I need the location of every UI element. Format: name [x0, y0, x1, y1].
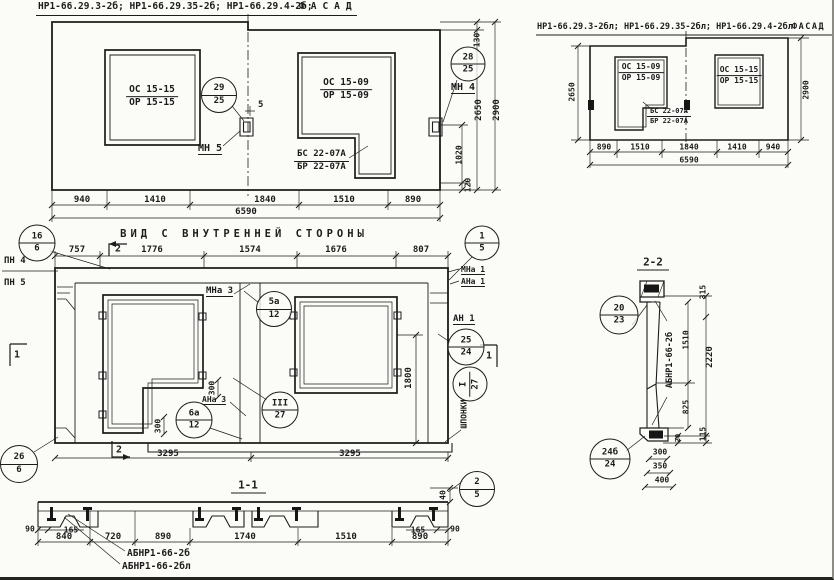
dim-label: 2900 — [801, 80, 810, 99]
facade-right-title-word: ФАСАД — [792, 23, 825, 33]
dim-label: 400 — [655, 475, 669, 484]
callout-bottom: 27 — [263, 411, 298, 422]
callout-top: 6а — [177, 408, 212, 420]
callout-bottom: 5 — [466, 244, 499, 255]
window-mark-left: ОС 15-15 ОР 15-15 — [126, 84, 178, 110]
callout-1-5: 1 5 — [465, 226, 500, 261]
mark-an1: АН 1 — [453, 314, 475, 325]
callout-28-25: 28 25 — [451, 47, 486, 82]
window-mark-bottom: ОР 15-15 — [717, 77, 762, 87]
section-mark-1-right: 1 — [486, 350, 492, 362]
callout-bottom: 23 — [601, 316, 638, 327]
dim-label: 2220 — [705, 346, 715, 368]
dim-label: 1740 — [234, 532, 256, 542]
dim-label: 40 — [438, 490, 447, 500]
callout-top: 28 — [452, 52, 485, 64]
dim-label: 1776 — [141, 245, 163, 255]
dim-label: 940 — [74, 195, 90, 205]
dim-label: 300 — [153, 419, 162, 433]
window-mark-bottom: ОР 15-09 — [619, 74, 664, 84]
callout-16-6: 16 6 — [19, 225, 56, 262]
dim-label: 20 — [674, 434, 682, 442]
dim-label: 1020 — [454, 145, 463, 164]
mark-mna1: МНа 1 — [461, 265, 485, 275]
dim-label: 890 — [597, 142, 611, 151]
callout-top: III — [263, 398, 298, 410]
window-mark-top: БС 22-07А — [647, 107, 691, 117]
section-mark-2-bottom: 2 — [116, 444, 122, 456]
callout-24b-24: 24б 24 — [590, 439, 631, 480]
dim-label: 90 — [450, 524, 460, 533]
callout-bottom: 12 — [257, 310, 291, 321]
dim-label: 350 — [653, 461, 667, 470]
window-mark-top: ОС 15-09 — [619, 62, 664, 73]
dim-label: 2900 — [492, 99, 502, 121]
dim-label: 1510 — [333, 195, 355, 205]
dim-label: 1410 — [144, 195, 166, 205]
panel-mark-label: АБНР1-66-2бл — [122, 562, 191, 573]
dim-label: 890 — [412, 532, 428, 542]
window-mark-top: ОС 15-09 — [320, 77, 372, 90]
dim-label: 1574 — [239, 245, 261, 255]
callout-bottom: 25 — [452, 65, 485, 76]
dim-label: 2650 — [567, 82, 576, 101]
window-mark-left: ОС 15-09 ОР 15-09 — [619, 62, 664, 84]
callout-top: 5а — [257, 297, 291, 309]
callout-bottom: 6 — [20, 244, 55, 255]
dim-label: 300 — [207, 381, 216, 395]
window-mark-top: БС 22-07А — [294, 149, 349, 162]
mark-mna3: МНа 3 — [206, 286, 233, 297]
section-mark-2-top: 2 — [115, 243, 121, 255]
callout-25-24: 25 24 — [448, 329, 485, 366]
mark-mn4: МН 4 — [451, 82, 475, 94]
callout-26-6: 26 6 — [0, 445, 38, 483]
window-mark-bottom: ОР 15-15 — [126, 98, 178, 110]
window-mark-top: ОС 15-15 — [717, 65, 762, 76]
callout-top: 25 — [449, 335, 484, 347]
facade-left-title-word: ФАСАД — [299, 2, 358, 13]
dim-label: 120 — [463, 178, 472, 192]
dim-label: 3295 — [339, 449, 361, 459]
callout-5a-12: 5а 12 — [256, 291, 292, 327]
window-mark-bottom: ОР 15-09 — [320, 91, 372, 103]
dim-label: 90 — [25, 524, 35, 533]
callout-top: 2 — [460, 477, 494, 489]
window-mark-left-extra: БС 22-07А БР 22-07А — [647, 107, 691, 126]
callout-2-5: 2 5 — [459, 471, 495, 507]
dim-label: 1410 — [727, 142, 746, 151]
callout-top: 26 — [1, 452, 37, 464]
dim-label: 300 — [653, 447, 667, 456]
callout-top: 29 — [202, 83, 236, 95]
dim-label: 757 — [69, 245, 85, 255]
drawing-sheet: НР1-66.29.3-2б; НР1-66.29.35-2б; НР1-66.… — [0, 0, 834, 580]
window-mark-bottom: БР 22-07А — [647, 117, 691, 126]
dim-label: 115 — [698, 427, 707, 441]
dim-label: 807 — [413, 245, 429, 255]
panel-mark-label-vertical: АБНР1-66-2б — [666, 332, 676, 388]
dim-label: 1800 — [404, 367, 414, 389]
callout-20-23: 20 23 — [600, 296, 639, 335]
section-1-1-outline — [35, 481, 463, 564]
callout-3-27: III 27 — [262, 392, 299, 429]
mark-keys: ШПОНКИ — [459, 400, 468, 429]
mark-ana3: АНа 3 — [202, 395, 226, 405]
callout-bottom: 6 — [1, 465, 37, 476]
dim-label: 130 — [472, 33, 481, 47]
window-mark-right-extra: БС 22-07А БР 22-07А — [294, 149, 349, 173]
facade-left-title: НР1-66.29.3-2б; НР1-66.29.35-2б; НР1-66.… — [38, 2, 313, 13]
callout-top: 20 — [601, 303, 638, 315]
dim-label: 825 — [681, 400, 690, 414]
callout-bottom: 12 — [177, 421, 212, 432]
dim-label: 1676 — [325, 245, 347, 255]
dim-label: 1840 — [679, 142, 698, 151]
inner-view-title: ВИД С ВНУТРЕННЕЙ СТОРОНЫ — [120, 228, 368, 240]
callout-top: 16 — [20, 231, 55, 243]
callout-29-25: 29 25 — [201, 77, 237, 113]
callout-bottom: 27 — [471, 372, 482, 397]
dim-label: 1840 — [254, 195, 276, 205]
dim-label: 940 — [766, 142, 780, 151]
callout-top: 1 — [466, 231, 499, 243]
facade-left-outline — [36, 14, 501, 222]
dim-label: 1510 — [681, 330, 690, 349]
dim-label: 840 — [56, 532, 72, 542]
mark-ana1: АНа 1 — [461, 277, 485, 287]
dim-label: 1510 — [335, 532, 357, 542]
callout-bottom: 24 — [591, 460, 630, 471]
dim-label-total: 6590 — [679, 155, 698, 164]
dim-label-total: 6590 — [235, 207, 257, 217]
window-mark-bottom: БР 22-07А — [294, 162, 349, 174]
window-mark-top: ОС 15-15 — [126, 84, 178, 97]
panel-mark-label: АБНР1-66-2б — [127, 549, 190, 560]
drawing-linework — [0, 0, 834, 580]
window-mark-right: ОС 15-15 ОР 15-15 — [717, 65, 762, 87]
callout-bottom: 24 — [449, 348, 484, 359]
inner-view-outline — [2, 241, 497, 462]
dim-label: 720 — [105, 532, 121, 542]
facade-right-title: НР1-66.29.3-2бл; НР1-66.29.35-2бл; НР1-6… — [537, 23, 793, 33]
window-mark-right: ОС 15-09 ОР 15-09 — [320, 77, 372, 103]
callout-6a-12: 6а 12 — [176, 402, 213, 439]
dim-label: 1510 — [630, 142, 649, 151]
level-mark: 5 — [258, 100, 263, 110]
callout-bottom: 5 — [460, 490, 494, 501]
callout-top: I — [458, 372, 470, 397]
section-mark-1-left: 1 — [14, 349, 20, 361]
dim-label: 2650 — [474, 99, 484, 121]
dim-label: 315 — [698, 285, 707, 299]
section-1-1-title: 1-1 — [238, 480, 258, 493]
section-2-2-title: 2-2 — [643, 257, 663, 270]
callout-top: 24б — [591, 447, 630, 459]
dim-label: 890 — [405, 195, 421, 205]
mark-pn5: ПН 5 — [4, 278, 26, 288]
mark-mn5: МН 5 — [198, 143, 222, 155]
callout-bottom: 25 — [202, 96, 236, 107]
dim-label: 890 — [155, 532, 171, 542]
callout-I-27-rotated: I 27 — [453, 367, 488, 402]
dim-label: 3295 — [157, 449, 179, 459]
mark-pn4: ПН 4 — [4, 256, 26, 266]
